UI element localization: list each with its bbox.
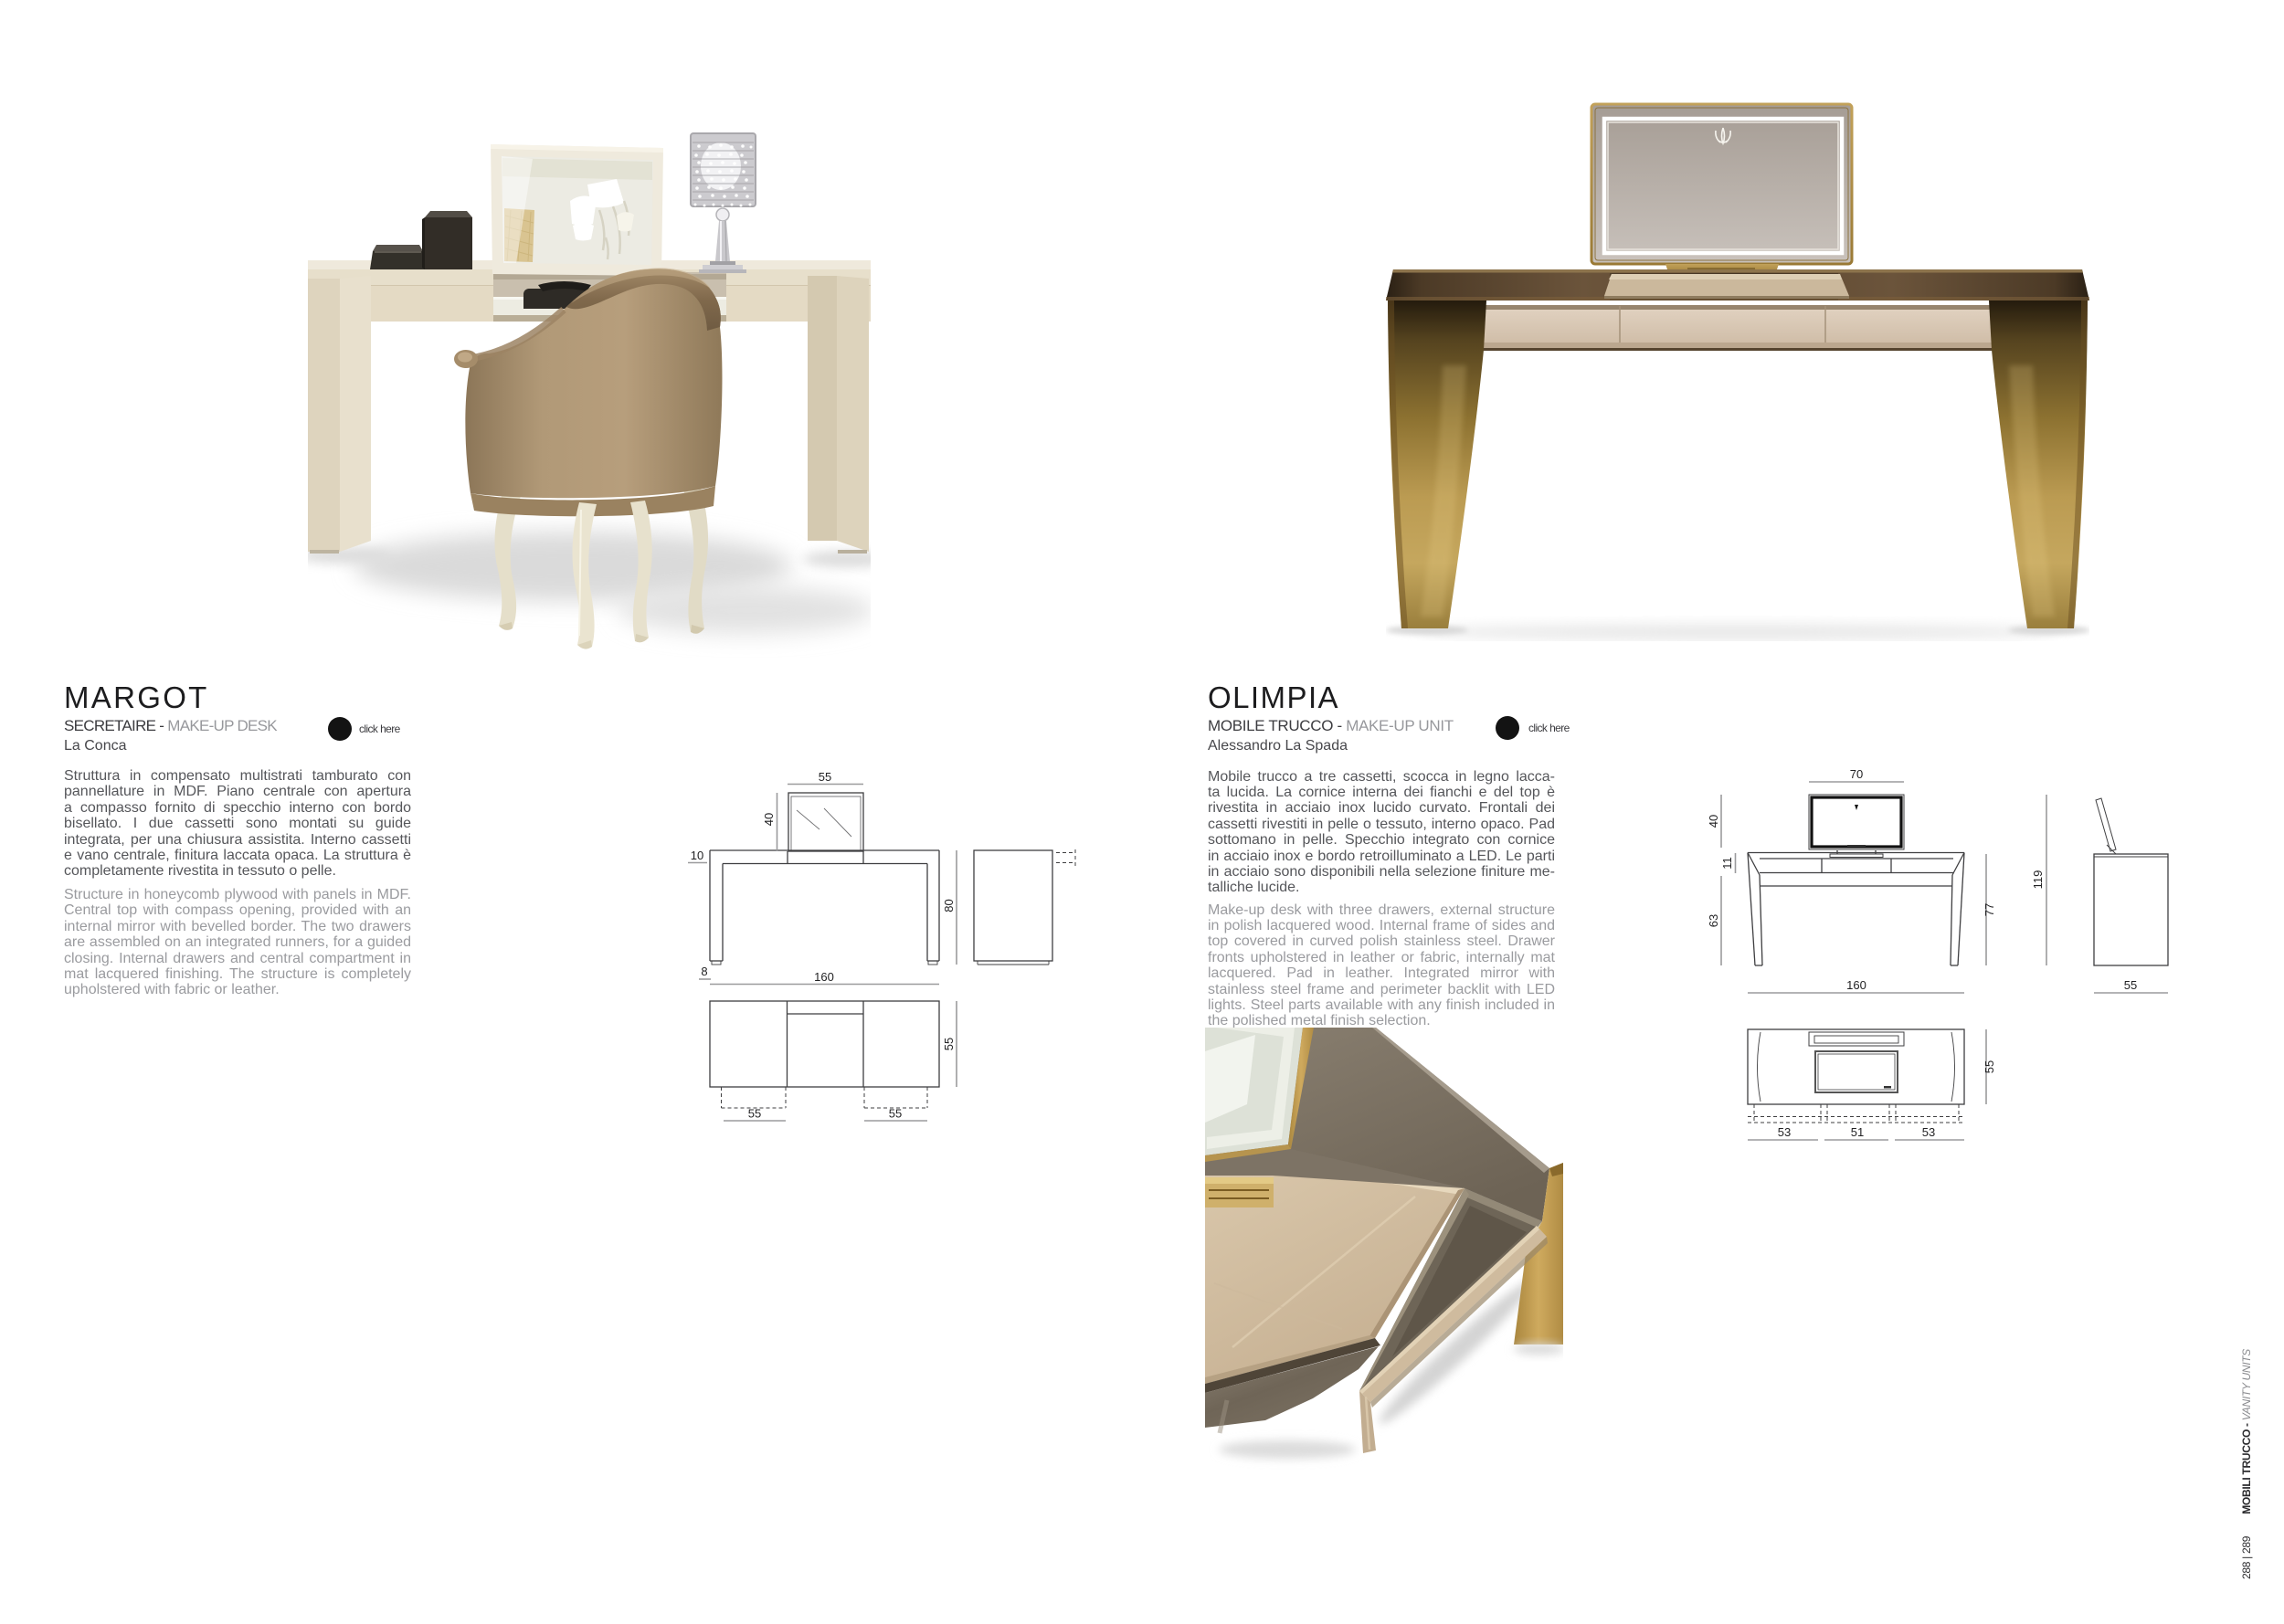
svg-text:53: 53 (1922, 1125, 1935, 1139)
svg-text:8: 8 (701, 965, 707, 978)
svg-text:160: 160 (814, 970, 834, 984)
svg-text:55: 55 (889, 1107, 902, 1121)
svg-text:10: 10 (691, 849, 703, 862)
svg-text:51: 51 (1851, 1125, 1864, 1139)
svg-text:63: 63 (1708, 914, 1720, 927)
svg-text:55: 55 (1983, 1060, 1996, 1073)
svg-text:53: 53 (1778, 1125, 1791, 1139)
svg-text:55: 55 (942, 1038, 956, 1050)
svg-text:40: 40 (1708, 815, 1720, 828)
svg-text:55: 55 (2124, 978, 2137, 992)
svg-text:40: 40 (762, 813, 776, 826)
svg-text:11: 11 (1720, 857, 1734, 870)
svg-text:119: 119 (2031, 870, 2045, 890)
svg-text:70: 70 (1850, 767, 1863, 781)
svg-text:55: 55 (748, 1107, 761, 1121)
svg-text:80: 80 (942, 899, 956, 912)
svg-text:160: 160 (1846, 978, 1866, 992)
svg-text:77: 77 (1983, 903, 1996, 916)
svg-text:55: 55 (819, 772, 831, 784)
